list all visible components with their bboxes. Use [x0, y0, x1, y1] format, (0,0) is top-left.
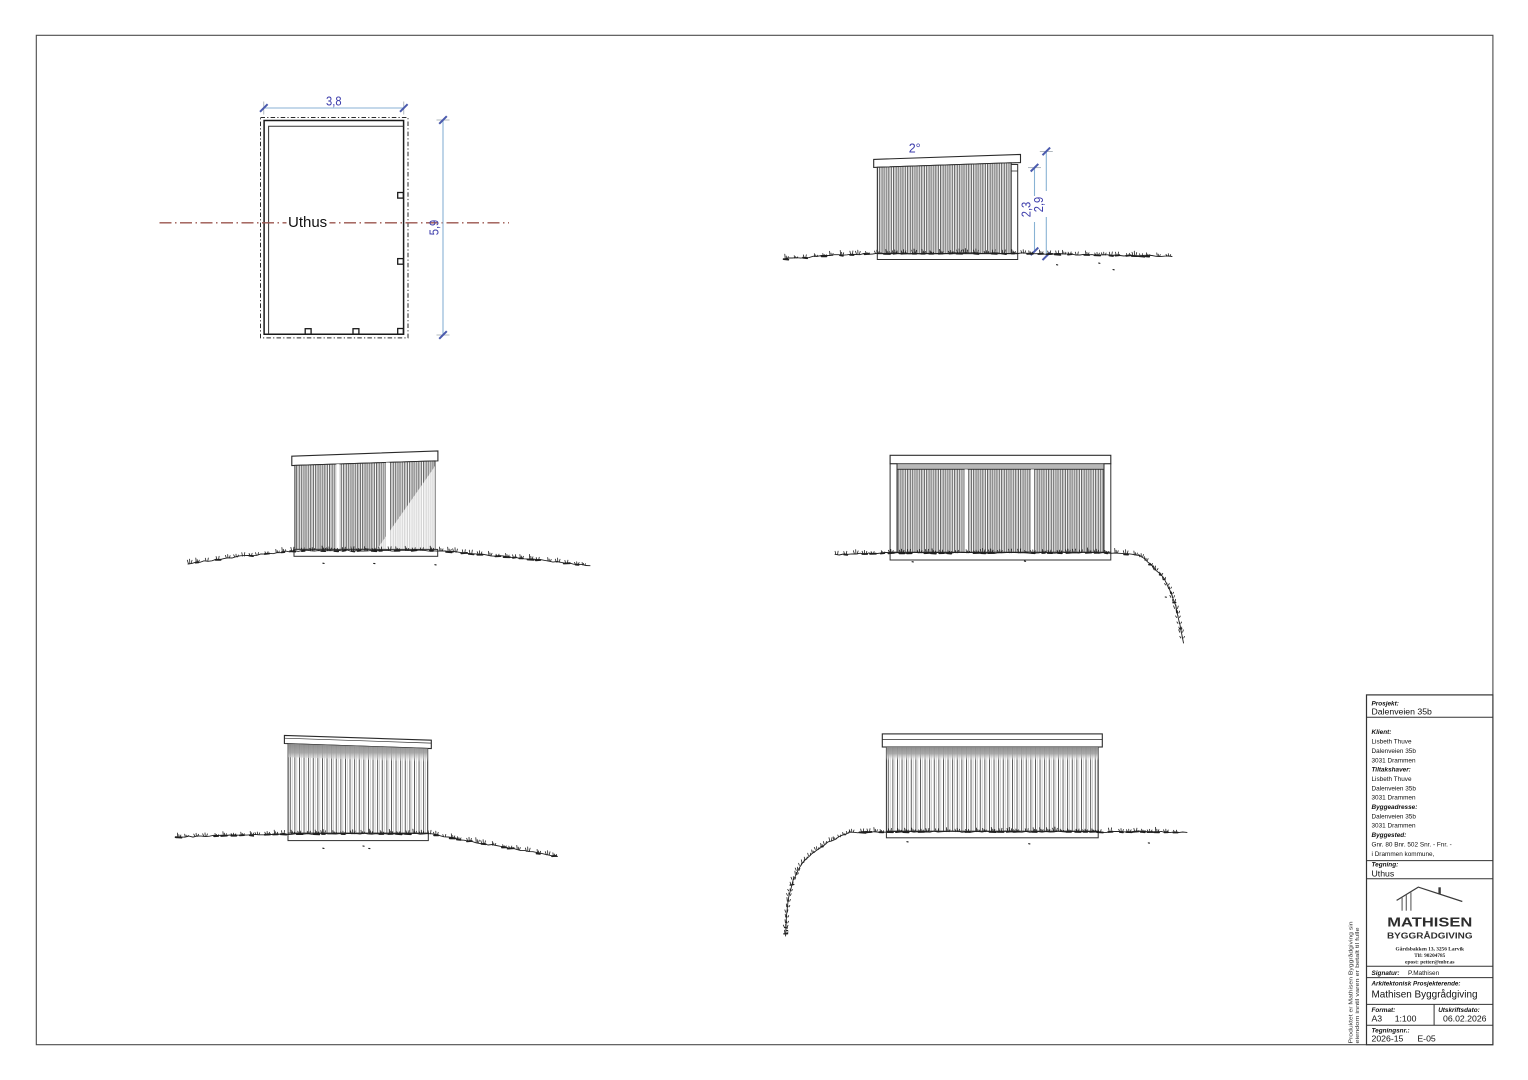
svg-text:Produktet er Mathisen Byggrådg: Produktet er Mathisen Byggrådgiving sin	[1348, 922, 1355, 1044]
svg-text:Dalenveien 35b: Dalenveien 35b	[1372, 813, 1417, 820]
svg-text:A3: A3	[1372, 1014, 1383, 1024]
svg-text:5,9: 5,9	[428, 220, 442, 236]
svg-text:3031 Drammen: 3031 Drammen	[1372, 757, 1416, 764]
svg-text:3031 Drammen: 3031 Drammen	[1372, 795, 1416, 802]
svg-text:Klient:: Klient:	[1372, 729, 1392, 736]
svg-text:Arkitektonisk Prosjekterende:: Arkitektonisk Prosjekterende:	[1371, 980, 1461, 987]
svg-text:Dalenveien 35b: Dalenveien 35b	[1372, 785, 1417, 792]
svg-text:2026-15: 2026-15	[1372, 1034, 1404, 1044]
svg-text:Mathisen Byggrådgiving: Mathisen Byggrådgiving	[1372, 989, 1478, 1001]
svg-text:Gårdsbakken 13, 3256 Larvik: Gårdsbakken 13, 3256 Larvik	[1396, 946, 1465, 953]
svg-text:Tiltakshaver:: Tiltakshaver:	[1372, 767, 1411, 774]
svg-text:Uthus: Uthus	[288, 214, 327, 231]
svg-text:1:100: 1:100	[1395, 1014, 1417, 1024]
svg-text:Gnr. 80 Bnr. 502 Snr. - Fnr.: Gnr. 80 Bnr. 502 Snr. - Fnr. -	[1372, 841, 1452, 848]
svg-text:Uthus: Uthus	[1372, 868, 1395, 878]
svg-text:MATHISEN: MATHISEN	[1387, 915, 1472, 930]
svg-text:Byggested:: Byggested:	[1372, 832, 1407, 839]
svg-text:3,8: 3,8	[326, 95, 342, 109]
svg-text:2,9: 2,9	[1032, 197, 1046, 213]
svg-text:Dalenveien 35b: Dalenveien 35b	[1372, 748, 1417, 755]
svg-text:BYGGRÅDGIVING: BYGGRÅDGIVING	[1387, 931, 1473, 941]
svg-text:Dalenveien 35b: Dalenveien 35b	[1372, 707, 1433, 717]
svg-text:Byggeadresse:: Byggeadresse:	[1372, 804, 1418, 811]
svg-text:i Drammen kommune,: i Drammen kommune,	[1372, 851, 1435, 858]
svg-text:E-05: E-05	[1417, 1034, 1436, 1044]
svg-text:2°: 2°	[909, 142, 921, 156]
svg-text:Tlf: 90204785: Tlf: 90204785	[1414, 953, 1445, 959]
svg-text:3031 Drammen: 3031 Drammen	[1372, 823, 1416, 830]
svg-text:epost: petter@mbr.as: epost: petter@mbr.as	[1405, 960, 1455, 966]
svg-text:Lisbeth Thuve: Lisbeth Thuve	[1372, 776, 1412, 783]
svg-text:Lisbeth Thuve: Lisbeth Thuve	[1372, 739, 1412, 746]
svg-text:P.Mathisen: P.Mathisen	[1408, 970, 1440, 977]
svg-text:Signatur:: Signatur:	[1372, 970, 1400, 977]
svg-text:06.02.2026: 06.02.2026	[1443, 1014, 1487, 1024]
svg-text:eiendom inntil varen er betalt: eiendom inntil varen er betalt til fulle	[1355, 928, 1361, 1044]
